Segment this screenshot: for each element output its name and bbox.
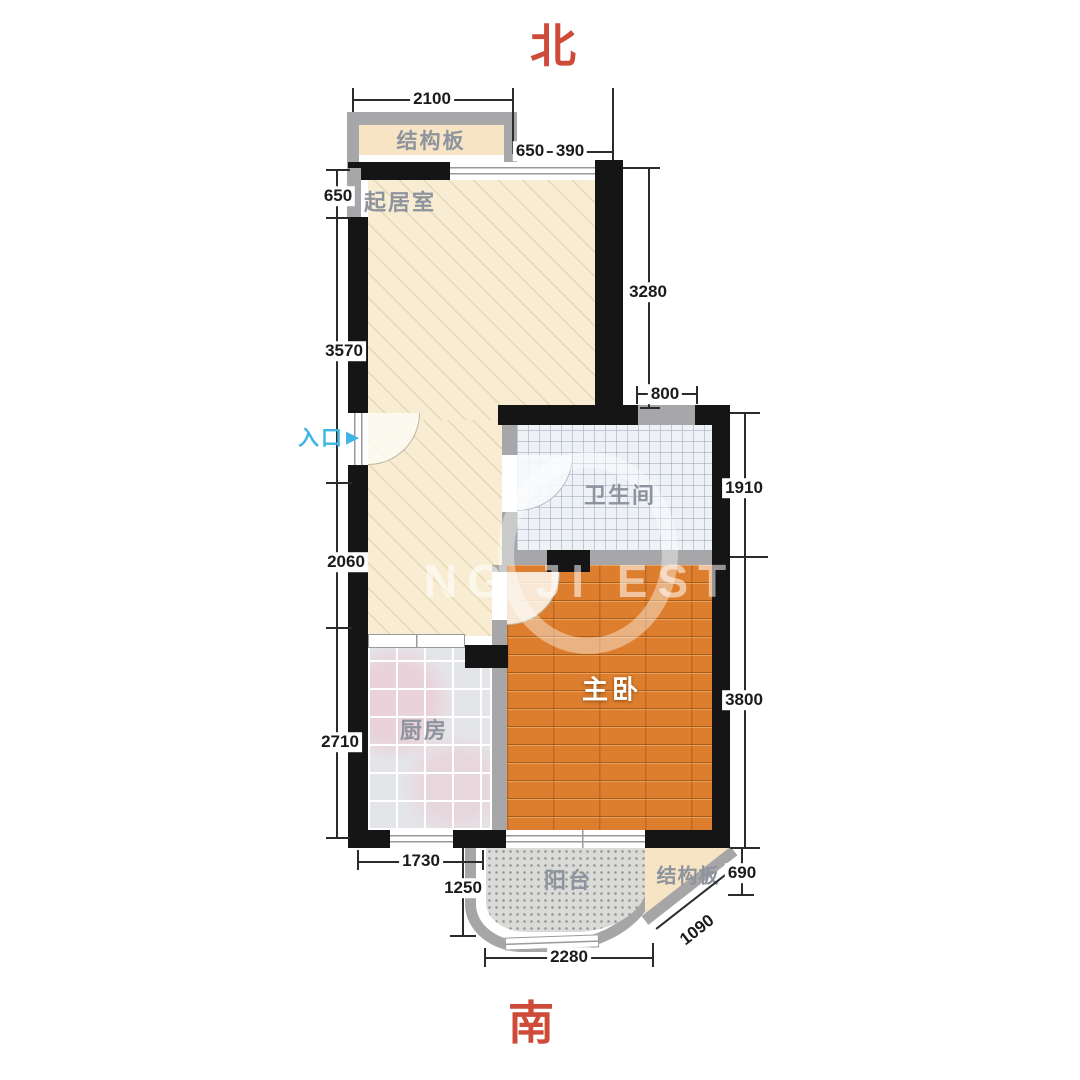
compass-south: 南 xyxy=(508,987,554,1053)
wall-top xyxy=(348,162,450,180)
dim-tick xyxy=(352,88,354,112)
dim-bottom-2280: 2280 xyxy=(547,947,591,967)
entrance-label: 入口 xyxy=(298,422,344,452)
dim-bottom-1250: 1250 xyxy=(441,878,485,898)
dim-tick xyxy=(640,407,660,409)
dim-right-3280: 3280 xyxy=(626,282,670,302)
dim-tick xyxy=(623,167,660,169)
dim-right-3800: 3800 xyxy=(722,690,766,710)
room-label-bathroom: 卫生间 xyxy=(584,478,656,510)
floor-plan: NG JI ESTA 结构板 起居室 卫生间 主卧 厨房 阳台 结构板 2100 xyxy=(0,0,1080,1080)
dim-top-390: 390 xyxy=(553,141,587,161)
balcony-sliding-door xyxy=(506,830,645,848)
dim-tick xyxy=(326,482,352,484)
dim-tick xyxy=(728,894,754,896)
living-kitchen-divider xyxy=(368,634,465,648)
wall-bottom-mid xyxy=(453,830,506,848)
dim-tick xyxy=(326,627,352,629)
dim-left-650: 650 xyxy=(321,186,355,206)
wall-left-upper xyxy=(348,217,368,413)
dim-left-2060: 2060 xyxy=(324,552,368,572)
wall-kitchen-corner-block xyxy=(465,645,508,668)
dim-tick xyxy=(696,386,698,404)
room-label-structural-top: 结构板 xyxy=(397,125,466,155)
dim-left-2710: 2710 xyxy=(318,732,362,752)
wall-living-right xyxy=(595,160,623,405)
dim-bottom-1730: 1730 xyxy=(399,851,443,871)
structural-board-top-band xyxy=(347,112,517,125)
dim-left-3570: 3570 xyxy=(322,341,366,361)
room-label-kitchen: 厨房 xyxy=(400,713,448,745)
dim-tick xyxy=(326,169,350,171)
room-label-bedroom: 主卧 xyxy=(582,670,642,707)
dim-tick xyxy=(484,948,486,967)
dim-tick xyxy=(357,850,359,870)
wall-bottom-left xyxy=(368,830,390,848)
kitchen-window xyxy=(390,830,453,848)
dim-top-650: 650 xyxy=(513,141,547,161)
dim-tick xyxy=(636,386,638,404)
dim-tick xyxy=(730,556,768,558)
room-label-balcony: 阳台 xyxy=(544,863,592,895)
structural-board-left-band xyxy=(347,112,359,168)
dim-bath-800: 800 xyxy=(648,384,682,404)
watermark-text: NG JI ESTA xyxy=(424,554,776,608)
dim-right-690: 690 xyxy=(725,863,759,883)
dim-tick xyxy=(612,88,614,160)
wall-bottom-right xyxy=(645,830,730,848)
wall-bathroom-top xyxy=(498,405,638,425)
room-label-living: 起居室 xyxy=(364,185,436,217)
entrance-arrow-icon: ▶ xyxy=(346,429,359,446)
dim-tick xyxy=(652,943,654,967)
dim-tick xyxy=(450,935,476,937)
dim-top-width: 2100 xyxy=(410,89,454,109)
compass-north: 北 xyxy=(530,10,576,76)
dim-tick xyxy=(326,217,350,219)
window-top xyxy=(450,162,595,180)
dim-tick xyxy=(326,837,350,839)
wall-left-lower xyxy=(348,465,368,848)
dim-diagonal-1090: 1090 xyxy=(674,909,721,951)
dim-tick xyxy=(730,412,760,414)
dim-tick xyxy=(730,847,760,849)
dim-right-1910: 1910 xyxy=(722,478,766,498)
wall-bathroom-top-right xyxy=(695,405,730,425)
dim-tick xyxy=(482,850,484,870)
